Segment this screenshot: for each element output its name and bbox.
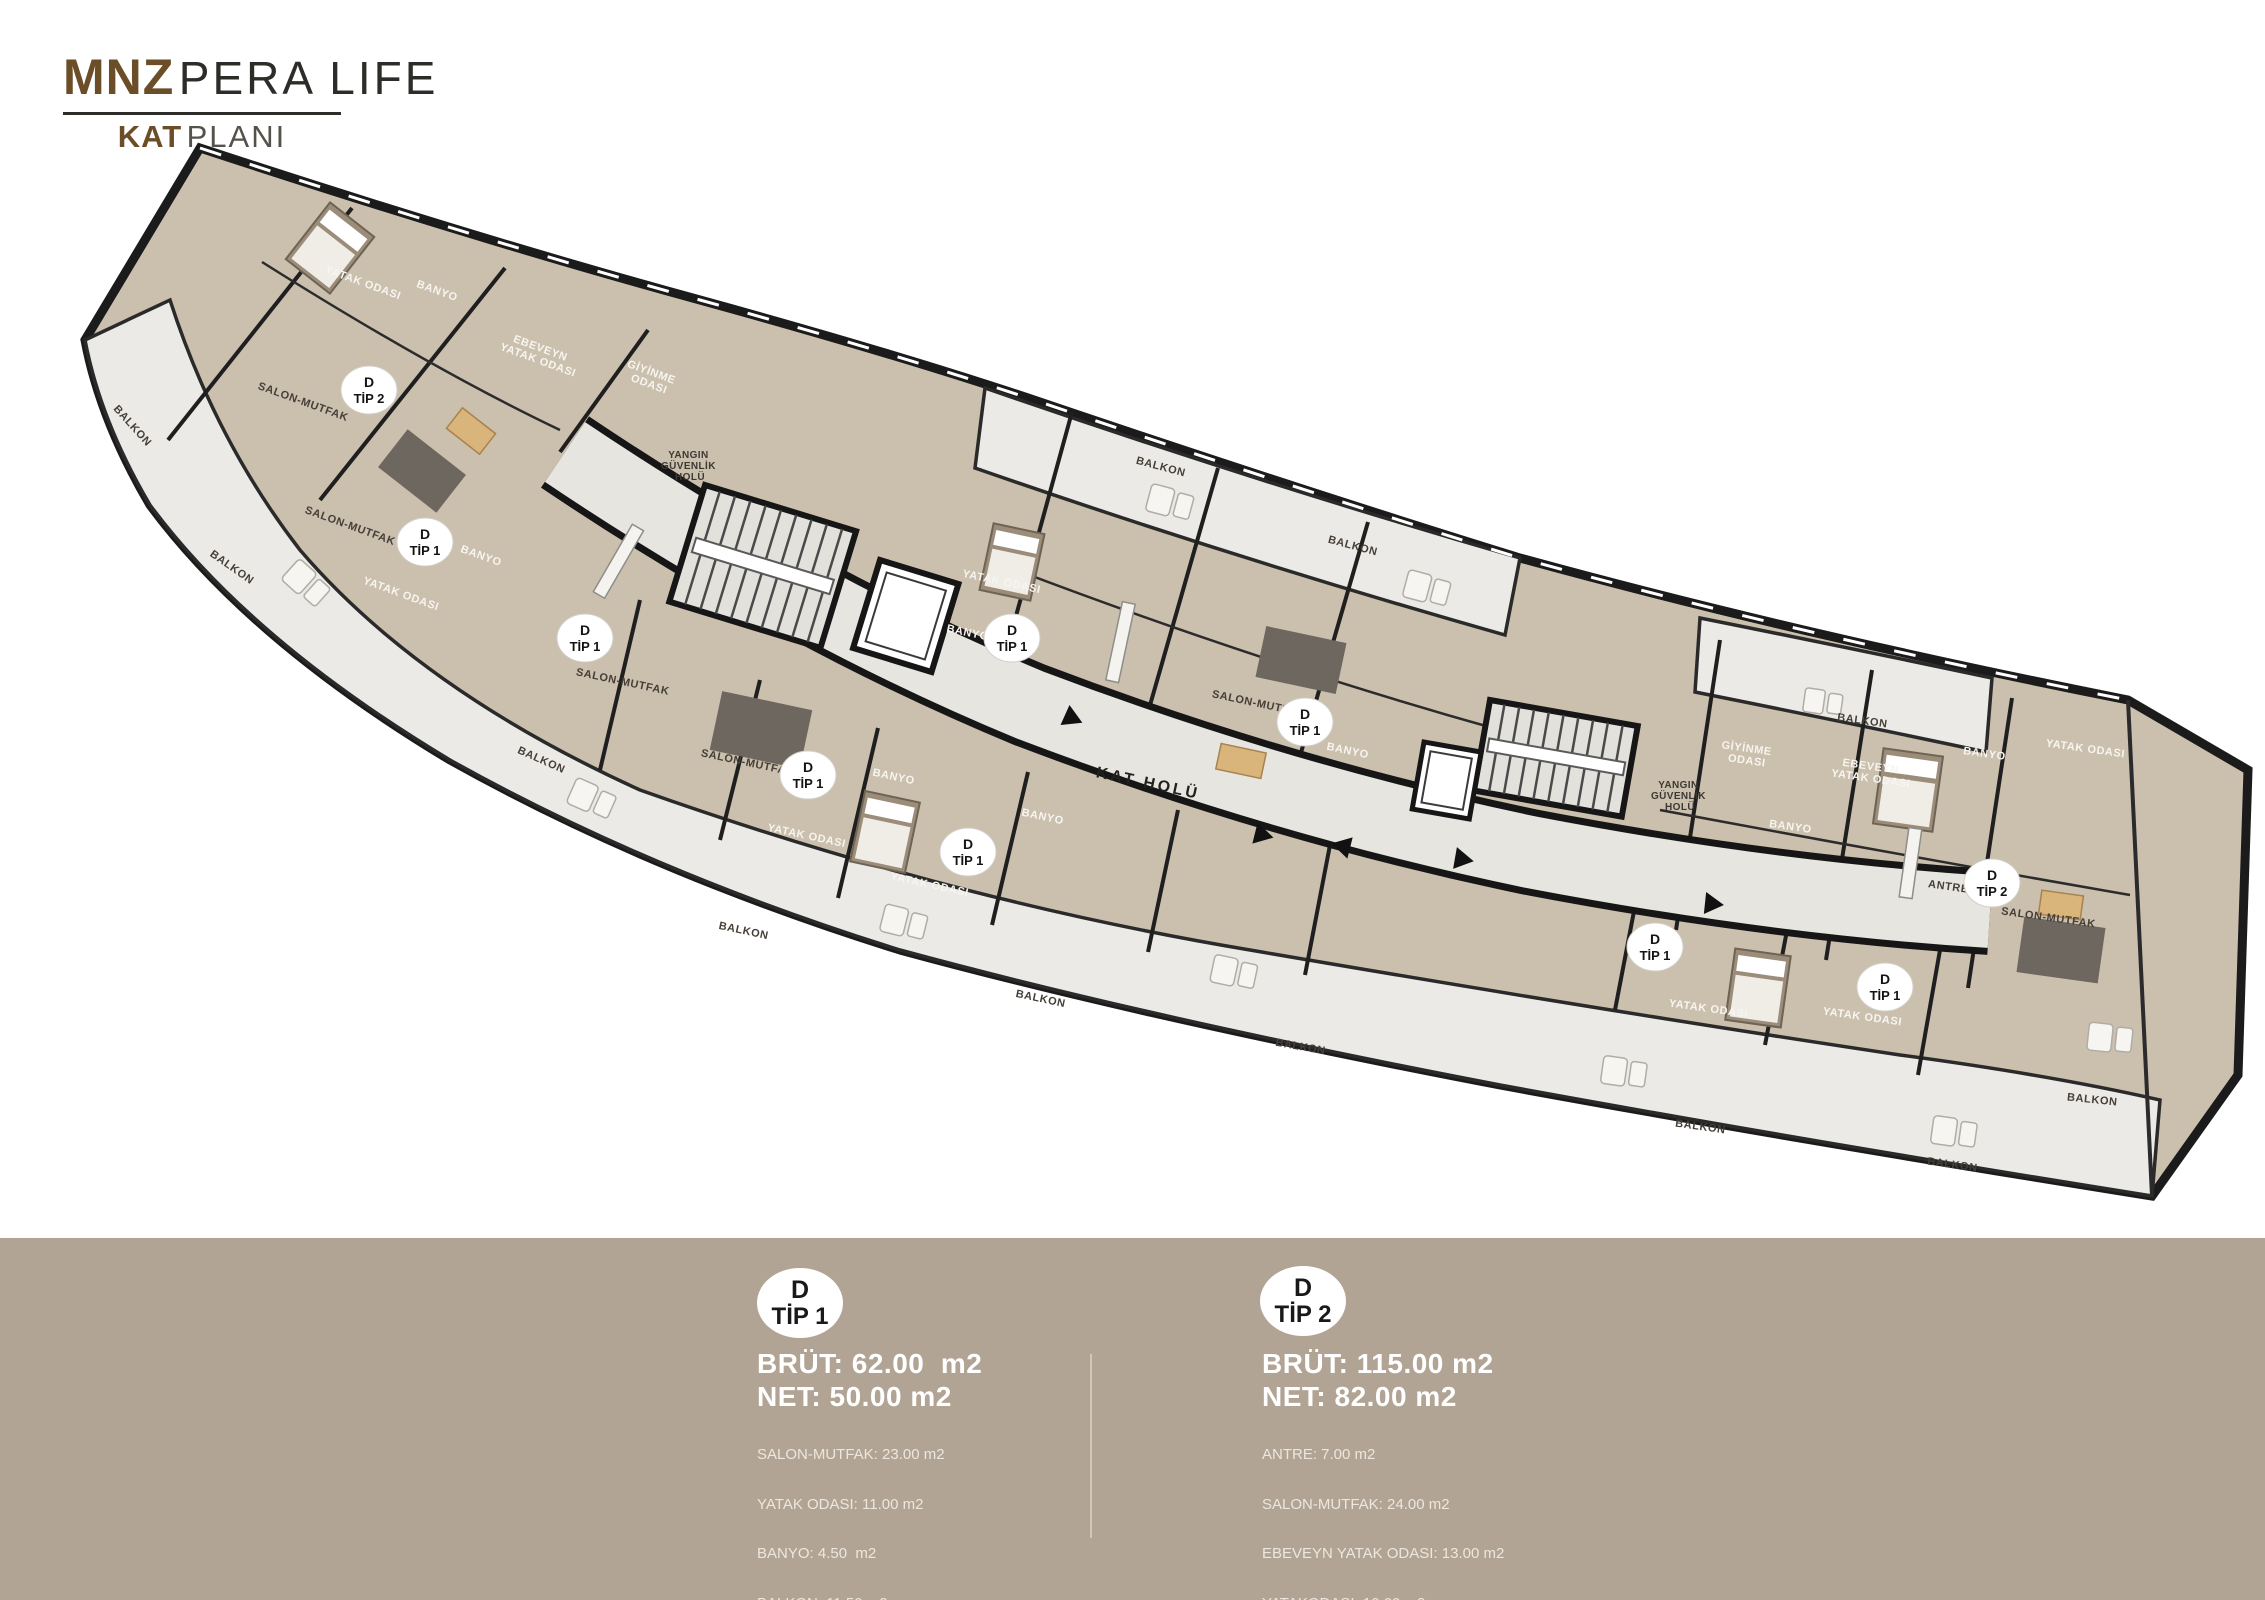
page: MNZ PERA LIFE KAT PLANI [0, 0, 2265, 1600]
unit-marker-tip1: D TİP 1 [940, 828, 996, 876]
unit-marker-tip1: D TİP 1 [1627, 923, 1683, 971]
unit-marker-tip2: D TİP 2 [1964, 859, 2020, 907]
unit-marker-tip1: D TİP 1 [1857, 963, 1913, 1011]
svg-text:TİP 1: TİP 1 [793, 776, 824, 791]
legend-divider [1090, 1354, 1092, 1538]
svg-text:D: D [580, 622, 590, 638]
legend-tip2-net: NET: 82.00 m2 [1262, 1381, 1457, 1413]
unit-marker-tip1: D TİP 1 [780, 751, 836, 799]
legend-detail-line: ANTRE: 7.00 m2 [1262, 1447, 1504, 1464]
svg-text:TİP 1: TİP 1 [410, 543, 441, 558]
svg-text:TİP 1: TİP 1 [1870, 988, 1901, 1003]
legend-tip1-marker-letter: D [791, 1278, 809, 1303]
legend-tip2-brut: BRÜT: 115.00 m2 [1262, 1348, 1494, 1380]
legend-tip1-brut: BRÜT: 62.00 m2 [757, 1348, 982, 1380]
svg-text:TİP 2: TİP 2 [354, 391, 385, 406]
legend-detail-line: EBEVEYN YATAK ODASI: 13.00 m2 [1262, 1546, 1504, 1563]
legend-detail-line: BANYO: 4.50 m2 [757, 1546, 945, 1563]
svg-text:TİP 1: TİP 1 [953, 853, 984, 868]
legend-tip2-marker-type: TİP 2 [1275, 1303, 1332, 1327]
unit-marker-tip1: D TİP 1 [1277, 698, 1333, 746]
svg-text:D: D [803, 759, 813, 775]
legend-tip2-marker: D TİP 2 [1260, 1266, 1346, 1336]
legend-band: D TİP 1 BRÜT: 62.00 m2 NET: 50.00 m2 SAL… [0, 1238, 2265, 1600]
elevator-right [1412, 742, 1481, 819]
legend-detail-line: BALKON: 11.50 m2 [757, 1596, 945, 1600]
svg-text:D: D [420, 526, 430, 542]
unit-marker-tip1: D TİP 1 [557, 614, 613, 662]
floor-plan: YATAK ODASI BANYO SALON-MUTFAK EBEVEYN Y… [0, 0, 2265, 1240]
svg-text:D: D [1987, 867, 1997, 883]
svg-text:D: D [364, 374, 374, 390]
balcony-label: BALKON [718, 920, 770, 942]
svg-text:TİP 1: TİP 1 [570, 639, 601, 654]
svg-text:D: D [963, 836, 973, 852]
legend-tip2-details: ANTRE: 7.00 m2 SALON-MUTFAK: 24.00 m2 EB… [1262, 1414, 1504, 1600]
svg-text:D: D [1880, 971, 1890, 987]
legend-tip1-net: NET: 50.00 m2 [757, 1381, 952, 1413]
svg-text:D: D [1007, 622, 1017, 638]
legend-detail-line: SALON-MUTFAK: 24.00 m2 [1262, 1497, 1504, 1514]
unit-marker-tip1: D TİP 1 [397, 518, 453, 566]
svg-text:TİP 1: TİP 1 [1290, 723, 1321, 738]
legend-tip1-marker: D TİP 1 [757, 1268, 843, 1338]
legend-tip1-marker-type: TİP 1 [772, 1305, 829, 1329]
unit-marker-tip2: D TİP 2 [341, 366, 397, 414]
legend-detail-line: YATAK ODASI: 11.00 m2 [757, 1497, 945, 1514]
svg-text:D: D [1650, 931, 1660, 947]
svg-text:TİP 1: TİP 1 [997, 639, 1028, 654]
unit-marker-tip1: D TİP 1 [984, 614, 1040, 662]
legend-tip1-details: SALON-MUTFAK: 23.00 m2 YATAK ODASI: 11.0… [757, 1414, 945, 1600]
svg-text:D: D [1300, 706, 1310, 722]
legend-detail-line: SALON-MUTFAK: 23.00 m2 [757, 1447, 945, 1464]
svg-text:TİP 1: TİP 1 [1640, 948, 1671, 963]
svg-text:TİP 2: TİP 2 [1977, 884, 2008, 899]
legend-detail-line: YATAKODASI: 10.00 m2 [1262, 1596, 1504, 1600]
legend-tip2-marker-letter: D [1294, 1276, 1312, 1301]
